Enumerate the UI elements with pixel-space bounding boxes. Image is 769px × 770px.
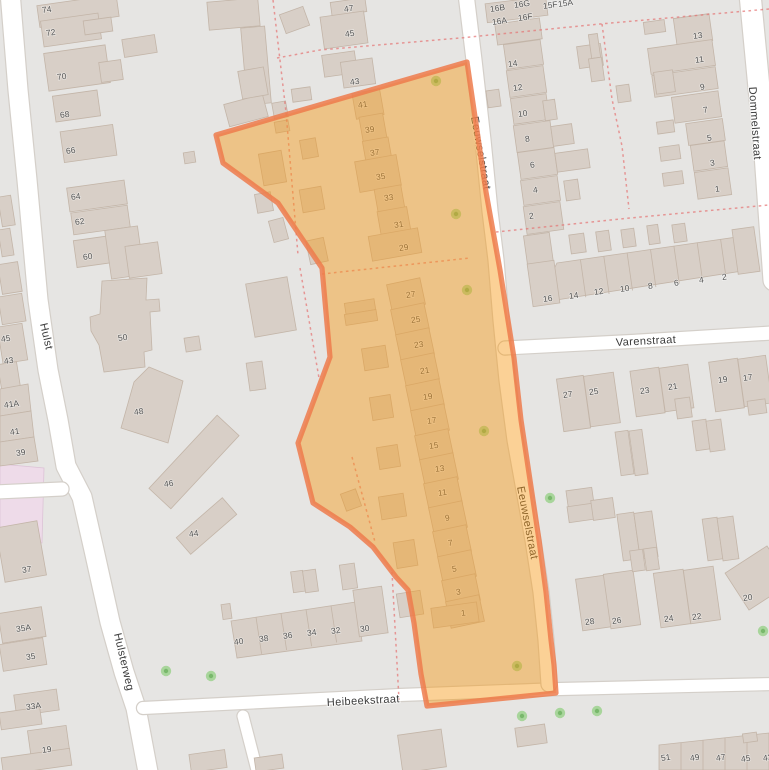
- svg-text:34: 34: [306, 627, 317, 638]
- svg-text:38: 38: [258, 633, 269, 644]
- svg-text:44: 44: [188, 528, 199, 539]
- svg-text:27: 27: [562, 389, 573, 400]
- svg-text:19: 19: [41, 744, 52, 755]
- svg-text:51: 51: [660, 752, 671, 763]
- svg-text:21: 21: [667, 381, 678, 392]
- svg-text:13: 13: [692, 30, 703, 41]
- svg-text:39: 39: [15, 447, 26, 458]
- svg-text:60: 60: [82, 251, 93, 262]
- svg-text:68: 68: [59, 109, 70, 120]
- svg-text:16A: 16A: [491, 15, 508, 27]
- svg-text:72: 72: [45, 27, 56, 38]
- svg-text:35: 35: [25, 651, 36, 662]
- svg-text:70: 70: [56, 71, 67, 82]
- svg-text:48: 48: [133, 406, 144, 417]
- svg-text:24: 24: [663, 613, 674, 624]
- svg-text:41A: 41A: [3, 398, 20, 410]
- svg-text:28: 28: [584, 616, 595, 627]
- svg-text:20: 20: [742, 592, 753, 603]
- svg-text:40: 40: [233, 636, 244, 647]
- svg-text:43: 43: [762, 752, 769, 763]
- svg-text:62: 62: [74, 216, 85, 227]
- svg-text:36: 36: [282, 630, 293, 641]
- svg-text:45: 45: [740, 753, 751, 764]
- svg-text:12: 12: [512, 82, 523, 93]
- svg-text:16: 16: [542, 293, 553, 304]
- svg-text:64: 64: [70, 191, 81, 202]
- svg-text:45: 45: [344, 28, 355, 39]
- svg-text:16F: 16F: [517, 11, 533, 23]
- svg-text:10: 10: [619, 283, 630, 294]
- svg-text:33A: 33A: [25, 700, 42, 712]
- svg-text:41: 41: [9, 426, 20, 437]
- svg-text:50: 50: [117, 332, 128, 343]
- svg-text:49: 49: [689, 752, 700, 763]
- svg-text:22: 22: [691, 611, 702, 622]
- svg-text:47: 47: [343, 3, 354, 14]
- svg-text:23: 23: [639, 385, 650, 396]
- svg-text:37: 37: [21, 564, 32, 575]
- svg-text:19: 19: [717, 374, 728, 385]
- svg-text:45: 45: [0, 333, 11, 344]
- svg-text:32: 32: [330, 625, 341, 636]
- svg-text:16B: 16B: [489, 2, 506, 14]
- svg-text:30: 30: [359, 623, 370, 634]
- svg-text:14: 14: [568, 290, 579, 301]
- svg-text:17: 17: [742, 372, 753, 383]
- svg-text:74: 74: [41, 4, 52, 15]
- svg-text:43: 43: [349, 76, 360, 87]
- svg-text:35A: 35A: [15, 622, 32, 634]
- svg-text:47: 47: [715, 752, 726, 763]
- svg-text:46: 46: [163, 478, 174, 489]
- svg-text:66: 66: [65, 145, 76, 156]
- svg-text:12: 12: [593, 286, 604, 297]
- svg-text:26: 26: [611, 615, 622, 626]
- svg-text:10: 10: [517, 108, 528, 119]
- svg-text:43: 43: [3, 355, 14, 366]
- svg-text:25: 25: [588, 386, 599, 397]
- svg-text:11: 11: [694, 54, 704, 65]
- svg-text:14: 14: [507, 58, 518, 69]
